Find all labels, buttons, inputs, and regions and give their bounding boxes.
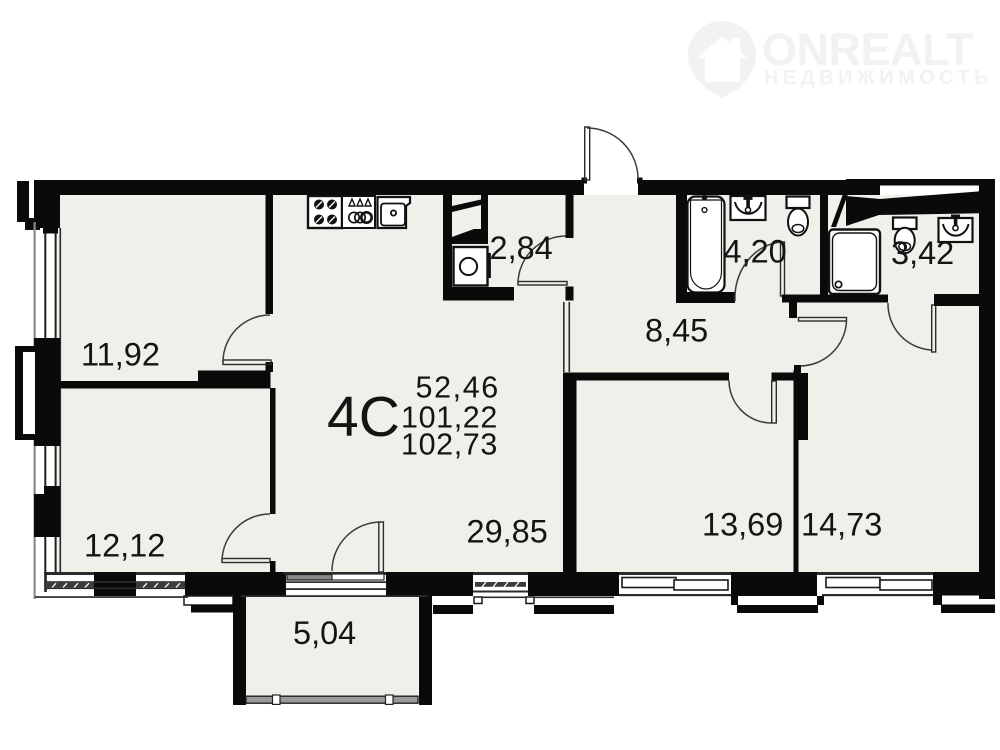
svg-text:5,04: 5,04 (293, 615, 356, 651)
svg-text:НЕДВИЖИМОСТЬ: НЕДВИЖИМОСТЬ (764, 67, 993, 89)
svg-text:13,69: 13,69 (702, 507, 783, 543)
svg-text:52,46: 52,46 (416, 371, 500, 405)
svg-text:3,42: 3,42 (891, 235, 954, 271)
svg-text:2,84: 2,84 (490, 230, 553, 266)
svg-text:29,85: 29,85 (467, 514, 548, 550)
svg-text:8,45: 8,45 (645, 313, 708, 349)
svg-text:102,73: 102,73 (401, 428, 498, 462)
svg-text:14,73: 14,73 (801, 507, 882, 543)
svg-text:4С: 4С (327, 385, 400, 449)
svg-text:4,20: 4,20 (724, 234, 787, 270)
svg-text:12,12: 12,12 (84, 528, 165, 564)
svg-text:11,92: 11,92 (81, 337, 160, 373)
